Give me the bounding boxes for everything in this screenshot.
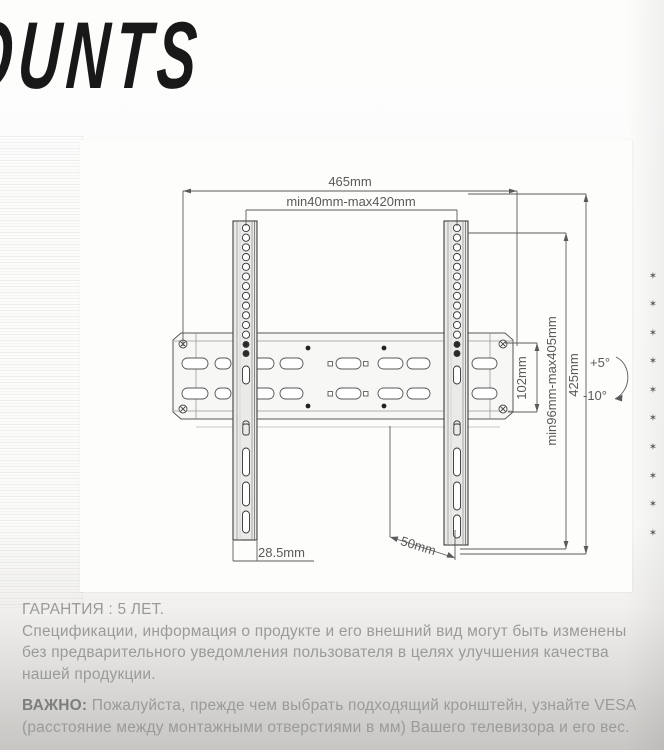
right-rail bbox=[444, 221, 468, 545]
star-marks-column: ✶ ✶ ✶ ✶ ✶ ✶ ✶ ✶ ✶ ✶ bbox=[649, 271, 657, 539]
disclaimer-line: без предварительного уведомления пользов… bbox=[22, 642, 650, 664]
dim-total-height-label: 425mm bbox=[566, 353, 581, 396]
dim-rail-width-label: 28.5mm bbox=[258, 545, 305, 560]
star-icon: ✶ bbox=[649, 471, 657, 482]
star-icon: ✶ bbox=[649, 271, 657, 282]
package-panel-photo: OUNTS bbox=[0, 0, 664, 750]
star-icon: ✶ bbox=[649, 442, 657, 453]
dim-vesa-width-label: min40mm-max420mm bbox=[286, 194, 415, 209]
footer-text-block: ГАРАНТИЯ : 5 ЛЕТ. Спецификации, информац… bbox=[22, 599, 650, 738]
right-rail-slots bbox=[454, 448, 461, 538]
right-rail-lock-tab bbox=[454, 421, 460, 435]
brand-logo-text: OUNTS bbox=[0, 6, 206, 106]
tilt-angle-indicator bbox=[615, 357, 628, 402]
left-rail bbox=[233, 221, 257, 540]
dimension-vesa-width bbox=[246, 210, 457, 226]
dim-plate-height-label: 102mm bbox=[514, 356, 529, 399]
tilt-down-label: -10° bbox=[583, 388, 607, 403]
star-icon: ✶ bbox=[649, 413, 657, 424]
star-icon: ✶ bbox=[649, 299, 657, 310]
important-text-1: Пожалуйста, прежде чем выбрать подходящи… bbox=[87, 697, 636, 714]
star-icon: ✶ bbox=[649, 356, 657, 367]
left-rail-slots bbox=[243, 448, 250, 533]
tilt-up-label: +5° bbox=[590, 355, 610, 370]
important-label: ВАЖНО: bbox=[22, 697, 87, 714]
dim-depth-label: 50mm bbox=[399, 533, 438, 558]
warranty-title: ГАРАНТИЯ : 5 ЛЕТ. bbox=[22, 599, 650, 621]
star-icon: ✶ bbox=[649, 385, 657, 396]
left-rail-lock-tab bbox=[243, 421, 249, 435]
dim-vesa-height-label: min96mm-max405mm bbox=[544, 316, 559, 445]
disclaimer-line: Спецификации, информация о продукте и ег… bbox=[22, 621, 650, 643]
dim-total-width-label: 465mm bbox=[328, 174, 371, 189]
star-icon: ✶ bbox=[649, 528, 657, 539]
disclaimer-line: нашей продукции. bbox=[22, 664, 650, 686]
important-line: ВАЖНО: Пожалуйста, прежде чем выбрать по… bbox=[22, 695, 650, 717]
star-icon: ✶ bbox=[649, 499, 657, 510]
important-text-2: (расстояние между монтажными отверстиями… bbox=[22, 717, 650, 739]
star-icon: ✶ bbox=[649, 328, 657, 339]
mount-technical-diagram: 465mm min40mm-max420mm 102mm min96mm-max… bbox=[0, 130, 664, 600]
